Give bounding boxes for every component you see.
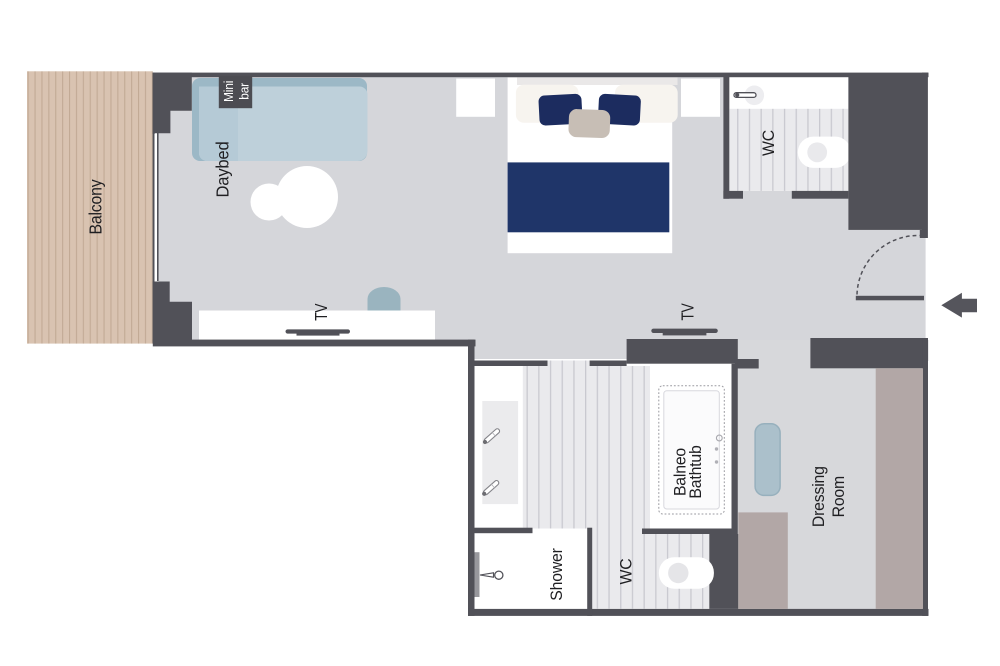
svg-text:TV: TV [313,303,332,321]
svg-text:Dressing: Dressing [810,466,829,527]
svg-text:Daybed: Daybed [212,142,233,198]
svg-text:Mini: Mini [222,81,237,102]
svg-text:WC: WC [760,130,779,156]
svg-text:Shower: Shower [548,548,567,601]
svg-text:WC: WC [617,558,636,584]
svg-text:Bathtub: Bathtub [687,445,706,498]
svg-text:TV: TV [679,303,698,321]
svg-text:bar: bar [237,83,252,100]
svg-text:Balcony: Balcony [86,179,106,235]
svg-text:Room: Room [830,476,849,517]
